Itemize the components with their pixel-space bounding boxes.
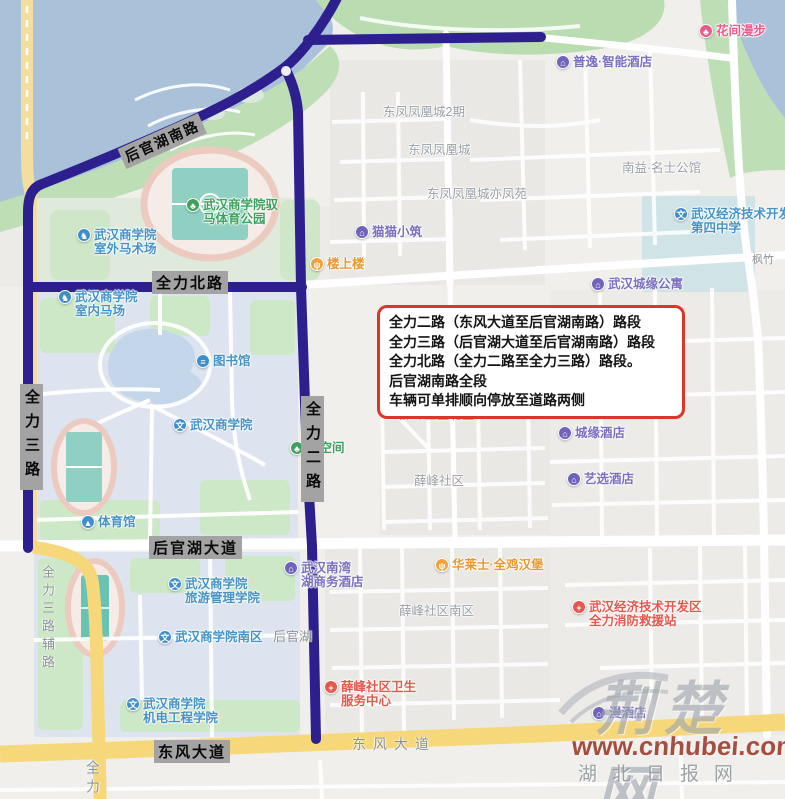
library-icon: ≡: [196, 354, 210, 368]
poi-wuhan-business-university[interactable]: 文 武汉商学院: [173, 418, 253, 432]
poi-label: 武汉经济技术开发区 全力消防救援站: [589, 600, 702, 628]
poi-tourism-management-college[interactable]: 文 武汉商学院 旅游管理学院: [168, 577, 260, 605]
area-yifengyuan: 东凤凤凰城亦凤苑: [427, 183, 527, 202]
college-icon: 文: [126, 697, 140, 711]
apartment-icon: ⌂: [591, 277, 605, 291]
poi-chengyuan-apartment[interactable]: ⌂ 武汉城缘公寓: [591, 277, 683, 291]
poi-label: 漫酒店: [609, 706, 647, 720]
poi-label: 武汉商学院南区: [175, 630, 263, 644]
poi-label: 武汉商学院 室内马场: [75, 290, 138, 318]
road-label-houguanhu-avenue: 后官湖大道: [149, 536, 242, 559]
university-icon: 文: [173, 418, 187, 432]
poi-no4-middle-school[interactable]: 文 武汉经济技术开发区 第四中学: [674, 207, 785, 235]
fire-station-icon: +: [572, 600, 586, 614]
poi-label: 华莱士·全鸡汉堡: [452, 558, 544, 572]
poi-indoor-equestrian-arena[interactable]: ♞ 武汉商学院 室内马场: [58, 290, 138, 318]
poi-library[interactable]: ≡ 图书馆: [196, 354, 251, 368]
poi-gymnasium[interactable]: ▲ 体育馆: [81, 515, 136, 529]
road-label-quanli-2: 全力二路: [301, 396, 324, 502]
road-text-quanli-3-fulu: 全力三路辅路: [38, 565, 57, 673]
area-xuefeng-south: 薛峰社区南区: [399, 600, 474, 619]
poi-label: 武汉商学院 机电工程学院: [143, 697, 218, 725]
poi-man-hotel[interactable]: ⌂ 漫酒店: [592, 706, 647, 720]
school-icon: 文: [674, 207, 688, 221]
parking-notice-box: 全力二路（东风大道至后官湖南路）路段 全力三路（后官湖大道至后官湖南路）路段 全…: [377, 305, 685, 419]
road-label-quanli-north: 全力北路: [152, 271, 228, 294]
restaurant-icon: ψ: [435, 558, 449, 572]
hotel-icon: ⌂: [592, 706, 606, 720]
poi-label: 薛峰社区卫生 服务中心: [341, 680, 416, 708]
poi-xuefeng-health-center[interactable]: + 薛峰社区卫生 服务中心: [324, 680, 416, 708]
road-text-fengzhu: 枫竹: [752, 251, 774, 267]
poi-quanli-fire-station[interactable]: + 武汉经济技术开发区 全力消防救援站: [572, 600, 702, 628]
poi-label: 武汉南湾 湖商务酒店: [301, 561, 364, 589]
poi-label: 花间漫步: [716, 24, 766, 38]
poi-label: 武汉城缘公寓: [608, 277, 683, 291]
poi-huajian-manbu[interactable]: ♣ 花间漫步: [699, 24, 766, 38]
clinic-icon: +: [324, 680, 338, 694]
equestrian-icon: ♞: [58, 290, 72, 304]
road-text-quanli-3-bottom: 全力三路: [83, 760, 103, 799]
poi-label: 武汉商学院: [190, 418, 253, 432]
college-icon: 文: [168, 577, 182, 591]
poi-label: 楼上楼: [327, 257, 365, 271]
road-label-quanli-3: 全力三路: [20, 384, 43, 490]
park-icon: ♣: [186, 198, 200, 212]
gym-icon: ▲: [81, 515, 95, 529]
poi-yixuan-hotel[interactable]: ⌂ 艺选酒店: [567, 472, 634, 486]
equestrian-icon: ♞: [77, 228, 91, 242]
poi-south-campus[interactable]: 文 武汉商学院南区: [158, 630, 263, 644]
hotel-icon: ⌂: [567, 472, 581, 486]
area-nanyi-mingshi: 南益·名士公馆: [622, 157, 701, 176]
homestay-icon: ⌂: [355, 225, 369, 239]
poi-label: 城缘酒店: [575, 426, 625, 440]
garden-icon: ♣: [699, 24, 713, 38]
road-text-dongfeng-gray: 东风大道: [352, 734, 436, 754]
road-text-houguanhu-partial: 后官湖: [273, 626, 312, 645]
area-xuefeng: 薛峰社区: [414, 470, 464, 489]
poi-hualaishi-burger[interactable]: ψ 华莱士·全鸡汉堡: [435, 558, 544, 572]
poi-label: 武汉商学院驭 马体育公园: [203, 198, 278, 226]
poi-label: 体育馆: [98, 515, 136, 529]
poi-loushanglou[interactable]: ψ 楼上楼: [310, 257, 365, 271]
hotel-icon: ⌂: [558, 426, 572, 440]
road-label-dongfeng-avenue: 东风大道: [154, 740, 230, 763]
hotel-icon: ⌂: [284, 561, 298, 575]
poi-label: 图书馆: [213, 354, 251, 368]
poi-outdoor-equestrian-field[interactable]: ♞ 武汉商学院 室外马术场: [77, 228, 157, 256]
area-dongfeng-fenghuangcheng-2: 东凤凤凰城2期: [383, 101, 465, 120]
hotel-icon: ⌂: [556, 55, 570, 69]
restaurant-icon: ψ: [310, 257, 324, 271]
campus-icon: 文: [158, 630, 172, 644]
poi-chengyuan-hotel[interactable]: ⌂ 城缘酒店: [558, 426, 625, 440]
poi-label: 艺选酒店: [584, 472, 634, 486]
map-canvas: 后官湖南路 全力北路 全力三路 全力二路 后官湖大道 东风大道 东风大道 全力三…: [0, 0, 785, 799]
area-dongfeng-fenghuangcheng: 东凤凤凰城: [408, 139, 471, 158]
poi-mechanical-engineering-college[interactable]: 文 武汉商学院 机电工程学院: [126, 697, 218, 725]
poi-label: 普逸·智能酒店: [573, 55, 652, 69]
poi-label: 武汉经济技术开发区 第四中学: [691, 207, 785, 235]
poi-label: 武汉商学院 旅游管理学院: [185, 577, 260, 605]
poi-label: 猫猫小筑: [372, 225, 422, 239]
poi-puyi-smart-hotel[interactable]: ⌂ 普逸·智能酒店: [556, 55, 652, 69]
poi-yuma-sports-park[interactable]: ♣ 武汉商学院驭 马体育公园: [186, 198, 278, 226]
poi-maomao-xiaozhu[interactable]: ⌂ 猫猫小筑: [355, 225, 422, 239]
poi-label: 武汉商学院 室外马术场: [94, 228, 157, 256]
poi-nanwan-business-hotel[interactable]: ⌂ 武汉南湾 湖商务酒店: [284, 561, 364, 589]
